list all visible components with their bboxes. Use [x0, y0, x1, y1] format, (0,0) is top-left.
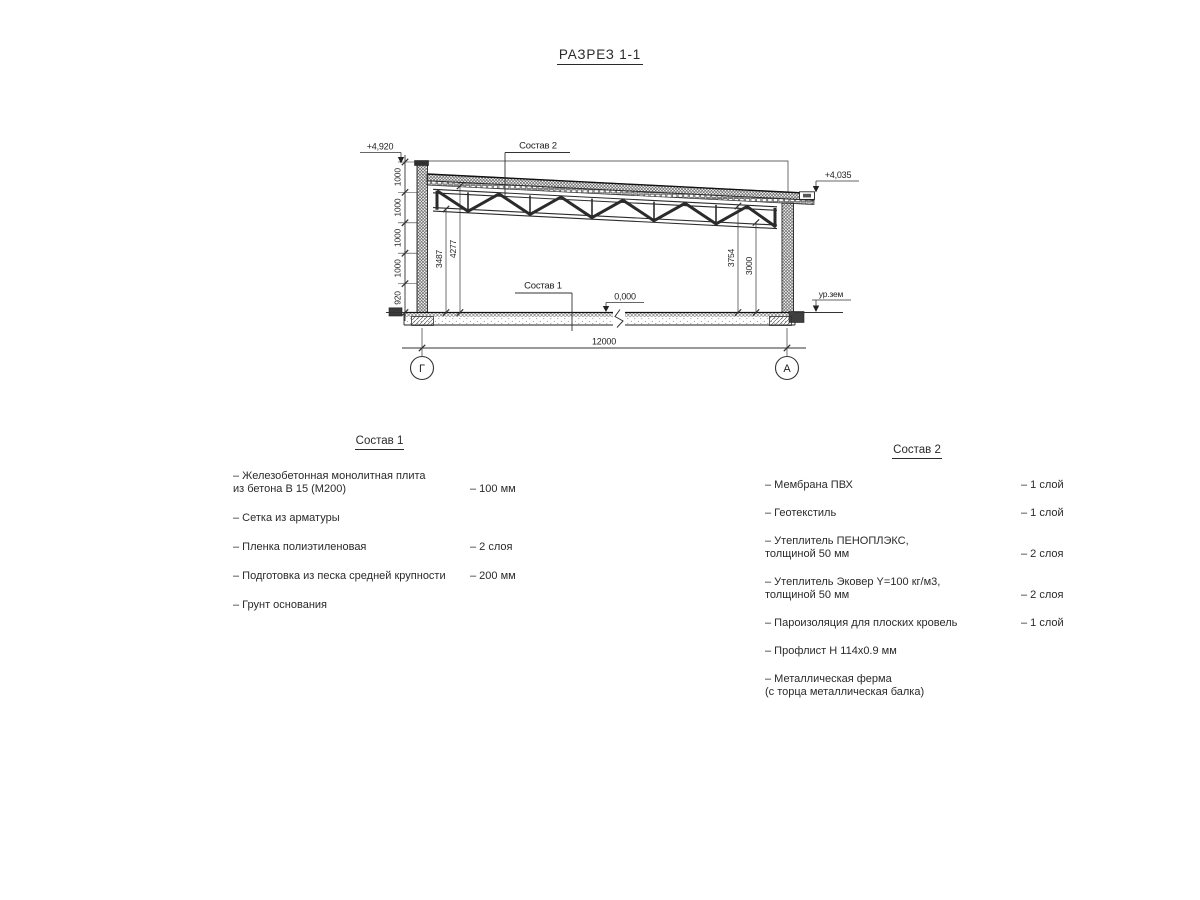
list-item: – Утеплитель Эковер Y=100 кг/м3, толщино…	[765, 576, 1069, 602]
left-dimension-chain: 1000 1000 1000 1000 920	[393, 155, 418, 321]
list-item: – Профлист Н 114х0.9 мм	[765, 645, 1069, 658]
roof-edge-beam-core	[803, 194, 811, 198]
dim-4277: 4277	[448, 239, 458, 258]
dim-1000-d: 1000	[393, 259, 403, 278]
sostav2-heading-text: Состав 2	[892, 444, 942, 459]
sostav2-heading: Состав 2	[765, 444, 1069, 457]
material-value: – 2 слоя	[470, 541, 526, 554]
material-name: – Пленка полиэтиленовая	[233, 541, 470, 554]
list-item: – Мембрана ПВХ – 1 слой	[765, 479, 1069, 492]
list-item: – Геотекстиль – 1 слой	[765, 507, 1069, 520]
elevation-mark-4920: +4,920	[360, 142, 404, 164]
dim-3487: 3487	[434, 249, 444, 268]
dim-920: 920	[393, 291, 403, 305]
sostav1-heading-text: Состав 1	[355, 435, 405, 450]
right-wall	[782, 203, 794, 313]
material-value: – 200 мм	[470, 570, 526, 583]
material-name: – Металлическая ферма (с торца металличе…	[765, 673, 1021, 699]
interior-dim-ticks	[443, 183, 759, 316]
sostav2-list: Состав 2 – Мембрана ПВХ – 1 слой – Геоте…	[765, 444, 1069, 714]
material-value: – 100 мм	[470, 483, 526, 496]
list-item: – Пленка полиэтиленовая – 2 слоя	[233, 541, 526, 554]
list-item: – Подготовка из песка средней крупности …	[233, 570, 526, 583]
dim-1000-c: 1000	[393, 228, 403, 247]
elevation-4035-label: +4,035	[825, 170, 852, 180]
material-value: – 1 слой	[1021, 479, 1069, 492]
material-name: – Сетка из арматуры	[233, 512, 470, 525]
list-item: – Железобетонная монолитная плита из бет…	[233, 470, 526, 496]
drawing-sheet: { "title": "РАЗРЕЗ 1-1", "section": { "e…	[0, 0, 1200, 900]
material-name: – Железобетонная монолитная плита из бет…	[233, 470, 470, 496]
list-item: – Пароизоляция для плоских кровель – 1 с…	[765, 617, 1069, 630]
axis-label-right: А	[783, 363, 791, 375]
floor-slab	[386, 308, 843, 328]
list-item: – Грунт основания	[233, 599, 526, 612]
leader-sostav2-label: Состав 2	[519, 141, 557, 152]
left-plinth-ledge	[389, 308, 402, 316]
left-foundation-pad	[412, 317, 434, 326]
composition-leaders: Состав 2 Состав 1	[505, 141, 572, 332]
material-name: – Профлист Н 114х0.9 мм	[765, 645, 1021, 658]
material-name: – Утеплитель ПЕНОПЛЭКС, толщиной 50 мм	[765, 535, 1021, 561]
material-value: – 2 слоя	[1021, 548, 1069, 561]
span-dimension: 12000 Г А	[402, 328, 806, 380]
dim-1000-b: 1000	[393, 198, 403, 217]
material-name: – Пароизоляция для плоских кровель	[765, 617, 1021, 630]
right-foundation-pad	[770, 317, 792, 326]
dim-1000-a: 1000	[393, 168, 403, 187]
list-item: – Сетка из арматуры	[233, 512, 526, 525]
material-value: – 1 слой	[1021, 507, 1069, 520]
elevation-4920-label: +4,920	[367, 142, 394, 152]
ground-level-label: ур.зем	[819, 289, 844, 299]
list-item: – Металлическая ферма (с торца металличе…	[765, 673, 1069, 699]
material-value: – 2 слоя	[1021, 589, 1069, 602]
sostav1-heading: Состав 1	[233, 435, 526, 448]
dim-span: 12000	[592, 337, 616, 347]
material-name: – Геотекстиль	[765, 507, 1021, 520]
material-name: – Утеплитель Эковер Y=100 кг/м3, толщино…	[765, 576, 1021, 602]
material-name: – Мембрана ПВХ	[765, 479, 1021, 492]
leader-sostav1-label: Состав 1	[524, 281, 562, 292]
left-wall	[417, 162, 428, 313]
section-drawing: 1000 1000 1000 1000 920 3487 4277 3754 3…	[0, 0, 1200, 430]
elevation-mark-0000: 0,000	[603, 292, 644, 313]
elevation-0000-label: 0,000	[614, 292, 636, 302]
material-name: – Подготовка из песка средней крупности	[233, 570, 470, 583]
dim-3000: 3000	[744, 256, 754, 275]
material-value: – 1 слой	[1021, 617, 1069, 630]
left-parapet-cap	[415, 161, 429, 166]
elevation-mark-4035: +4,035	[813, 170, 859, 193]
dim-3754: 3754	[726, 248, 736, 267]
sostav1-list: Состав 1 – Железобетонная монолитная пли…	[233, 435, 526, 628]
axis-label-left: Г	[419, 363, 425, 375]
material-name: – Грунт основания	[233, 599, 470, 612]
list-item: – Утеплитель ПЕНОПЛЭКС, толщиной 50 мм –…	[765, 535, 1069, 561]
ground-level-mark: ур.зем	[812, 289, 851, 312]
